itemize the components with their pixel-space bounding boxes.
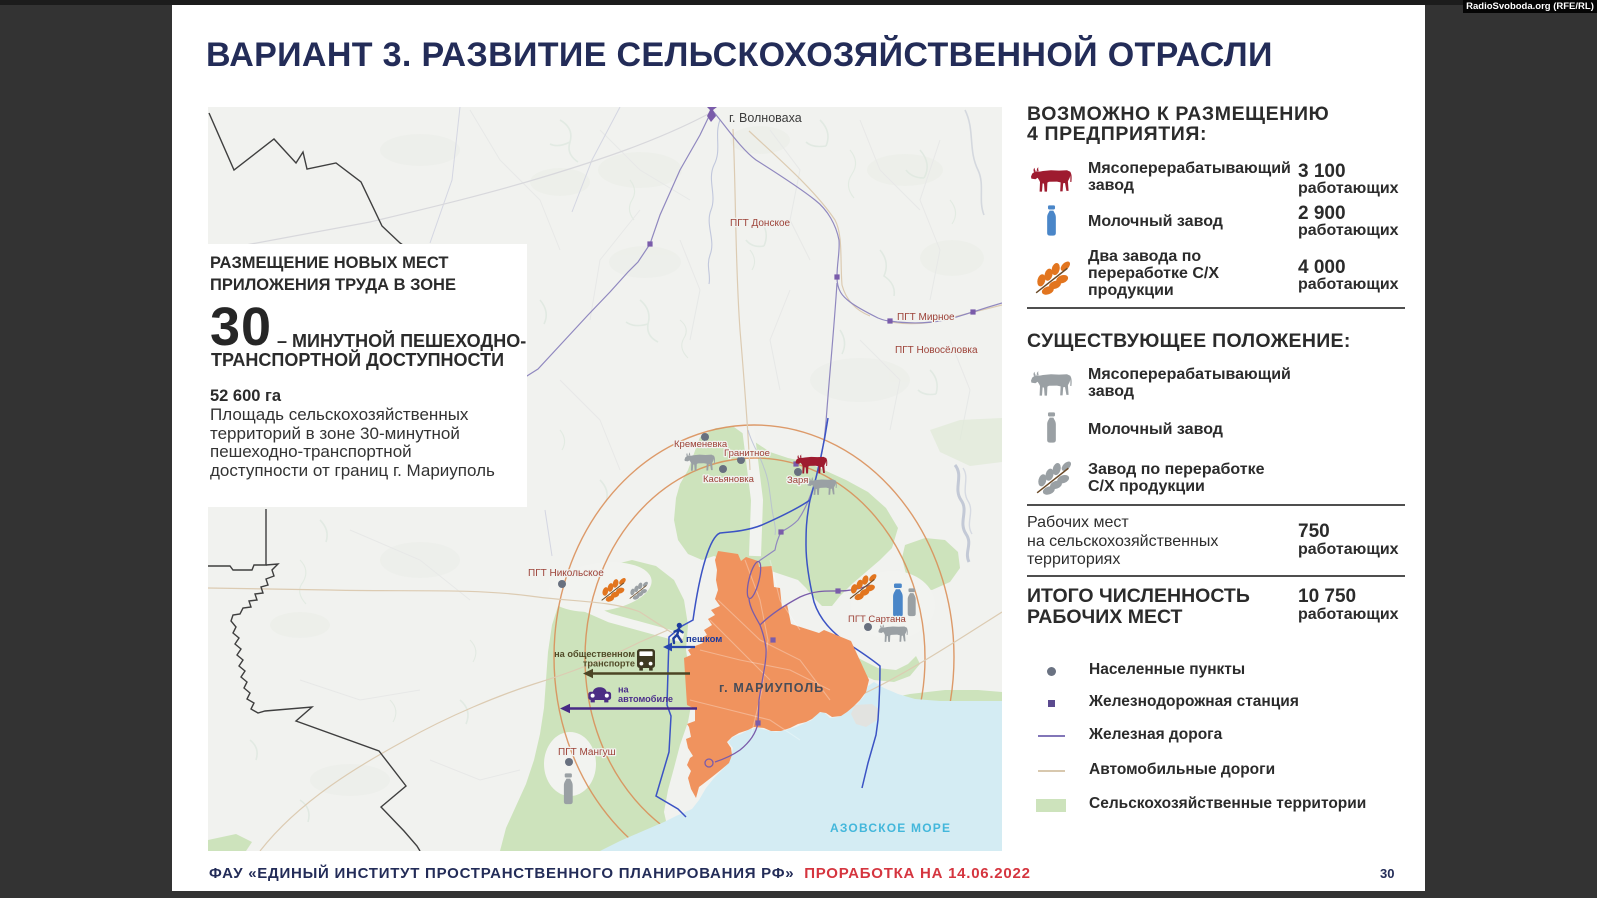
svg-text:Кременевка: Кременевка [674,439,728,450]
svg-text:на общественном: на общественном [554,649,635,659]
svg-text:пешком: пешком [686,634,722,645]
svg-text:ПГТ Донское: ПГТ Донское [730,218,791,229]
svg-text:Касьяновка: Касьяновка [703,474,755,485]
svg-text:транспорте: транспорте [583,659,635,669]
svg-text:ПГТ Мангуш: ПГТ Мангуш [558,747,616,758]
svg-text:Заря: Заря [787,475,808,486]
svg-text:ПГТ Сартана: ПГТ Сартана [848,614,907,625]
svg-text:АЗОВСКОЕ МОРЕ: АЗОВСКОЕ МОРЕ [830,821,951,835]
svg-text:г. МАРИУПОЛЬ: г. МАРИУПОЛЬ [719,681,824,695]
svg-text:г. Волноваха: г. Волноваха [729,111,802,125]
svg-text:ПГТ Мирное: ПГТ Мирное [897,312,955,323]
svg-text:на: на [618,685,630,695]
svg-text:ПГТ Новосёловка: ПГТ Новосёловка [895,345,978,356]
svg-text:ПГТ Никольское: ПГТ Никольское [528,568,604,579]
svg-text:автомобиле: автомобиле [618,694,673,704]
svg-text:Гранитное: Гранитное [724,448,770,459]
